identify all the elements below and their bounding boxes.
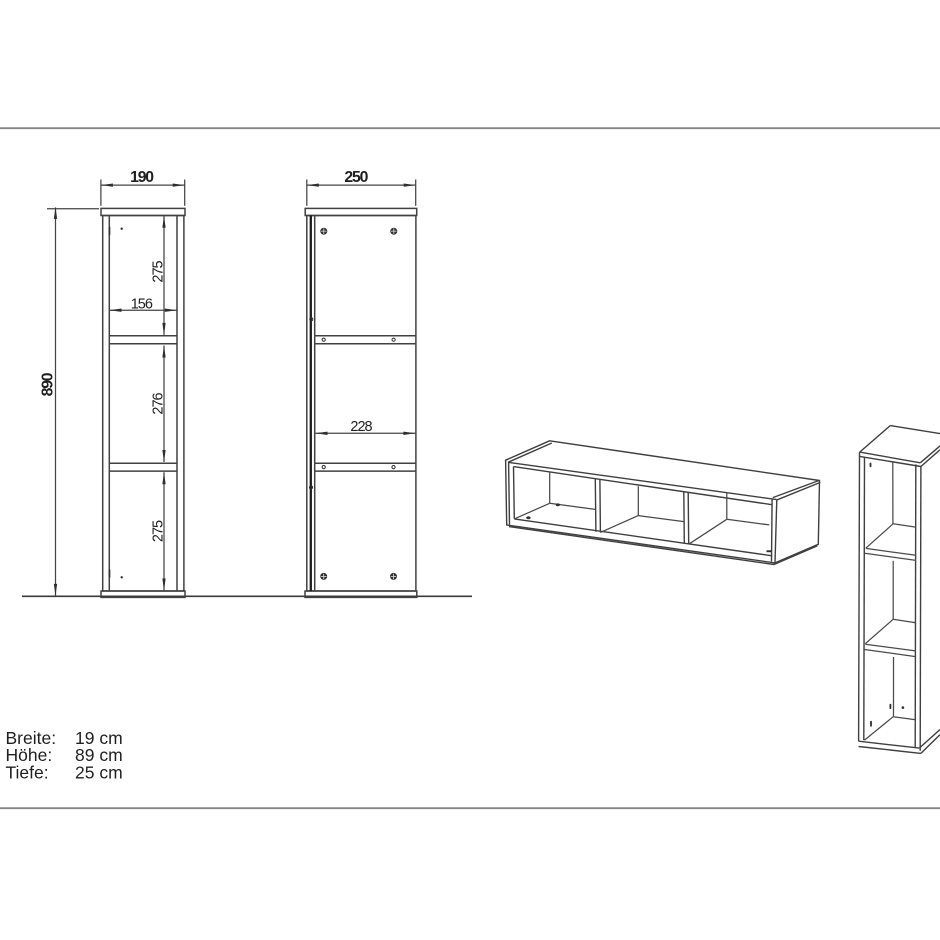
- svg-text:275: 275: [150, 520, 166, 542]
- svg-text:890: 890: [39, 372, 56, 396]
- svg-text:156: 156: [131, 296, 153, 312]
- svg-text:228: 228: [350, 419, 372, 435]
- svg-text:276: 276: [150, 392, 166, 414]
- svg-text:Tiefe:: Tiefe:: [6, 762, 49, 782]
- svg-text:25 cm: 25 cm: [75, 762, 123, 782]
- svg-text:250: 250: [344, 169, 368, 186]
- svg-text:275: 275: [150, 260, 166, 282]
- svg-text:190: 190: [130, 169, 154, 186]
